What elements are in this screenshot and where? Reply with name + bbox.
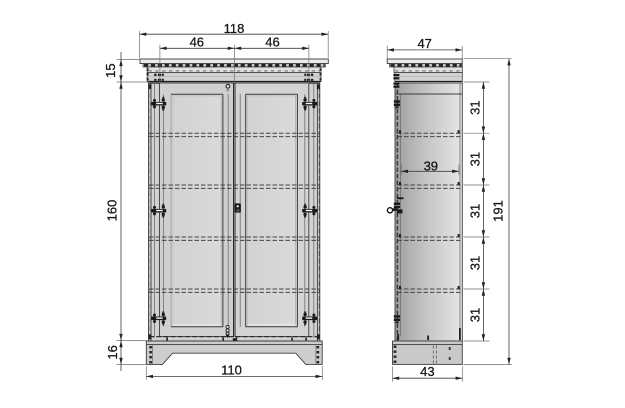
svg-text:110: 110: [221, 362, 242, 377]
svg-text:46: 46: [265, 35, 279, 50]
svg-text:43: 43: [420, 364, 434, 379]
svg-text:31: 31: [468, 256, 483, 270]
svg-text:15: 15: [103, 63, 118, 77]
svg-text:191: 191: [490, 200, 505, 222]
svg-text:31: 31: [468, 100, 483, 114]
svg-text:16: 16: [105, 345, 120, 359]
svg-text:31: 31: [468, 308, 483, 322]
svg-text:160: 160: [104, 200, 119, 222]
svg-text:118: 118: [224, 21, 245, 36]
svg-text:31: 31: [468, 204, 483, 218]
svg-text:39: 39: [424, 158, 438, 173]
svg-text:47: 47: [417, 36, 431, 51]
svg-text:46: 46: [190, 35, 204, 50]
svg-text:31: 31: [468, 152, 483, 166]
